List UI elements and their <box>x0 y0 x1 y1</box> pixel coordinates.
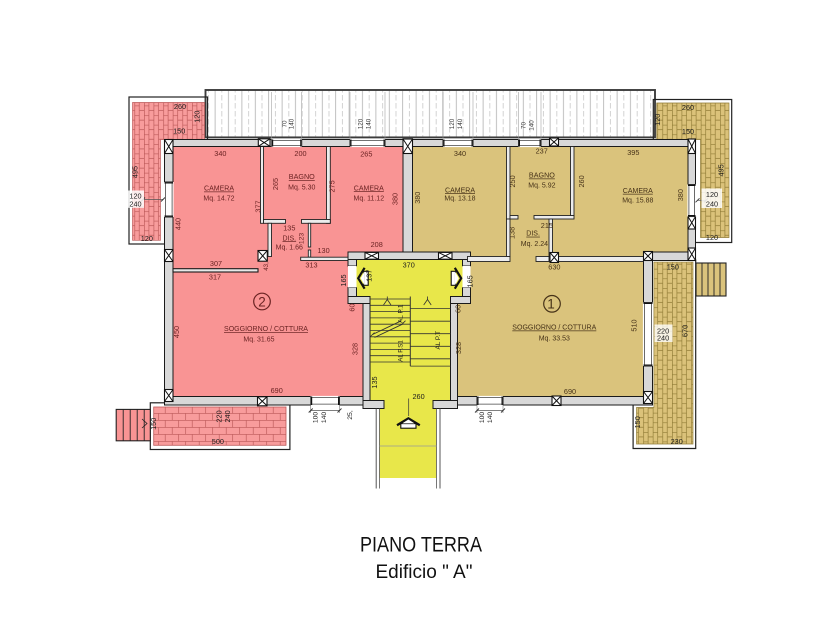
svg-text:140: 140 <box>487 412 494 424</box>
svg-text:307: 307 <box>210 259 222 268</box>
svg-text:100: 100 <box>313 412 320 424</box>
svg-text:CAMERA: CAMERA <box>445 187 475 194</box>
svg-text:200: 200 <box>294 149 306 158</box>
svg-text:1: 1 <box>547 296 555 311</box>
svg-text:Mq. 14.72: Mq. 14.72 <box>203 195 234 202</box>
svg-text:240: 240 <box>223 410 232 422</box>
svg-text:Mq. 1.66: Mq. 1.66 <box>276 244 303 251</box>
svg-text:140: 140 <box>529 120 536 131</box>
svg-text:690: 690 <box>564 387 576 396</box>
svg-text:495: 495 <box>131 166 140 178</box>
svg-text:328: 328 <box>454 342 463 354</box>
svg-text:Mq. 31.65: Mq. 31.65 <box>243 337 274 344</box>
svg-text:130: 130 <box>318 246 330 255</box>
svg-text:PIANO TERRA: PIANO TERRA <box>360 534 482 557</box>
svg-text:370: 370 <box>403 261 415 270</box>
svg-text:60: 60 <box>348 303 357 311</box>
svg-text:BAGNO: BAGNO <box>529 173 556 180</box>
svg-text:135: 135 <box>283 224 295 233</box>
svg-text:SOGGIORNO / COTTURA: SOGGIORNO / COTTURA <box>512 325 596 332</box>
svg-text:Mq. 5.92: Mq. 5.92 <box>528 182 555 189</box>
svg-text:670: 670 <box>681 325 690 337</box>
svg-text:380: 380 <box>391 193 400 205</box>
svg-text:120: 120 <box>358 118 365 129</box>
svg-text:237: 237 <box>536 147 548 156</box>
svg-text:500: 500 <box>212 437 224 446</box>
svg-text:120: 120 <box>449 118 456 129</box>
svg-text:250: 250 <box>508 175 517 187</box>
svg-text:70: 70 <box>282 120 289 128</box>
svg-text:495: 495 <box>717 164 726 176</box>
svg-text:BAGNO: BAGNO <box>289 174 316 181</box>
svg-text:100: 100 <box>479 412 486 424</box>
svg-text:230: 230 <box>671 437 683 446</box>
svg-text:25,: 25, <box>347 410 354 420</box>
svg-text:690: 690 <box>271 386 283 395</box>
svg-text:240: 240 <box>657 334 669 343</box>
svg-text:135: 135 <box>370 376 379 388</box>
svg-text:215: 215 <box>541 221 553 230</box>
svg-text:260: 260 <box>682 103 694 112</box>
svg-text:260: 260 <box>413 392 425 401</box>
svg-text:140: 140 <box>457 118 464 129</box>
svg-text:150: 150 <box>633 416 642 428</box>
svg-text:150: 150 <box>667 263 679 272</box>
svg-text:630: 630 <box>548 263 560 272</box>
svg-text:120: 120 <box>706 233 718 242</box>
svg-text:150: 150 <box>682 127 694 136</box>
svg-text:AL P.1: AL P.1 <box>398 304 405 323</box>
svg-text:140: 140 <box>321 412 328 424</box>
svg-text:377: 377 <box>253 200 262 212</box>
svg-text:123: 123 <box>298 233 305 245</box>
svg-text:317: 317 <box>209 273 221 282</box>
svg-text:328: 328 <box>351 343 360 355</box>
svg-text:260: 260 <box>577 175 586 187</box>
svg-text:150: 150 <box>149 418 158 430</box>
svg-text:DIS.: DIS. <box>282 235 296 242</box>
svg-text:CAMERA: CAMERA <box>623 188 653 195</box>
svg-text:265: 265 <box>360 150 372 159</box>
svg-text:140: 140 <box>289 118 296 129</box>
svg-text:120: 120 <box>653 114 662 126</box>
svg-text:Mq. 33.53: Mq. 33.53 <box>539 335 570 342</box>
svg-text:70: 70 <box>521 122 528 130</box>
svg-text:240: 240 <box>706 199 718 208</box>
svg-text:165: 165 <box>466 275 475 287</box>
svg-text:150: 150 <box>173 127 185 136</box>
svg-text:208: 208 <box>371 240 383 249</box>
svg-text:Mq. 15.88: Mq. 15.88 <box>622 197 653 204</box>
svg-text:137: 137 <box>365 270 374 282</box>
svg-text:140: 140 <box>366 118 373 129</box>
svg-text:SOGGIORNO / COTTURA: SOGGIORNO / COTTURA <box>224 326 308 333</box>
svg-text:CAMERA: CAMERA <box>354 185 384 192</box>
svg-text:Mq. 11.12: Mq. 11.12 <box>353 195 384 202</box>
svg-text:275: 275 <box>327 180 336 192</box>
svg-text:510: 510 <box>629 319 638 331</box>
svg-text:AL P.S1: AL P.S1 <box>397 340 404 362</box>
svg-text:AL P.T: AL P.T <box>435 331 442 350</box>
svg-text:240: 240 <box>129 199 141 208</box>
svg-text:Edificio " A": Edificio " A" <box>376 562 473 583</box>
svg-text:120: 120 <box>192 111 201 123</box>
svg-text:260: 260 <box>174 102 186 111</box>
svg-text:380: 380 <box>676 189 685 201</box>
svg-text:450: 450 <box>172 326 181 338</box>
svg-text:340: 340 <box>454 149 466 158</box>
svg-text:Mq. 13.18: Mq. 13.18 <box>444 195 475 202</box>
svg-text:120: 120 <box>706 190 718 199</box>
svg-text:138: 138 <box>507 227 516 239</box>
svg-text:43,: 43, <box>263 262 270 271</box>
svg-text:313: 313 <box>305 261 317 270</box>
svg-text:395: 395 <box>627 148 639 157</box>
svg-text:380: 380 <box>413 192 422 204</box>
svg-text:120: 120 <box>141 234 153 243</box>
svg-text:440: 440 <box>174 218 183 230</box>
svg-text:Mq. 2.24: Mq. 2.24 <box>521 241 548 248</box>
svg-text:DIS.: DIS. <box>526 231 540 238</box>
svg-text:60: 60 <box>453 305 462 313</box>
svg-text:2: 2 <box>258 294 266 309</box>
svg-text:CAMERA: CAMERA <box>204 186 234 193</box>
svg-text:165: 165 <box>339 274 348 286</box>
svg-text:Mq. 5.30: Mq. 5.30 <box>288 184 315 191</box>
svg-text:340: 340 <box>214 149 226 158</box>
svg-text:265: 265 <box>271 178 280 190</box>
